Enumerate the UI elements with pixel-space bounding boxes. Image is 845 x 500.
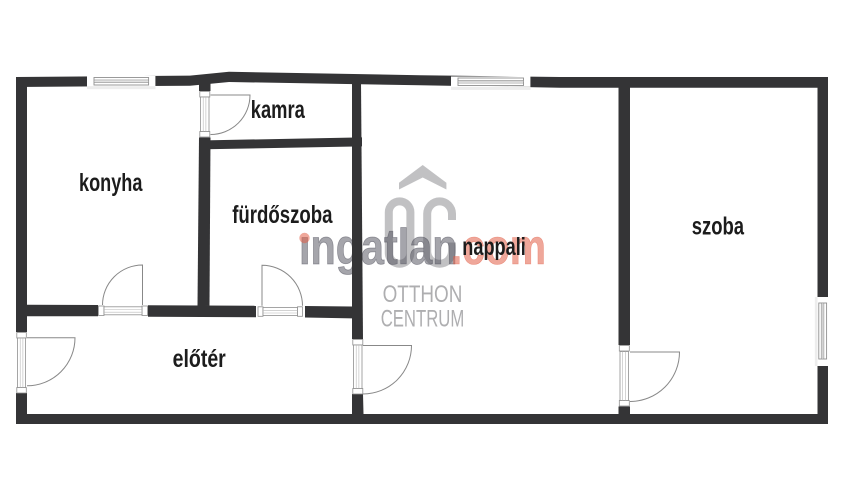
svg-text:nappali: nappali — [462, 233, 526, 261]
svg-text:szoba: szoba — [692, 213, 745, 241]
svg-text:konyha: konyha — [79, 169, 143, 197]
svg-text:előtér: előtér — [173, 345, 226, 373]
svg-text:kamra: kamra — [251, 96, 306, 124]
svg-text:CENTRUM: CENTRUM — [381, 306, 465, 333]
svg-text:OTTHON: OTTHON — [383, 281, 463, 308]
svg-text:fürdőszoba: fürdőszoba — [232, 201, 333, 229]
